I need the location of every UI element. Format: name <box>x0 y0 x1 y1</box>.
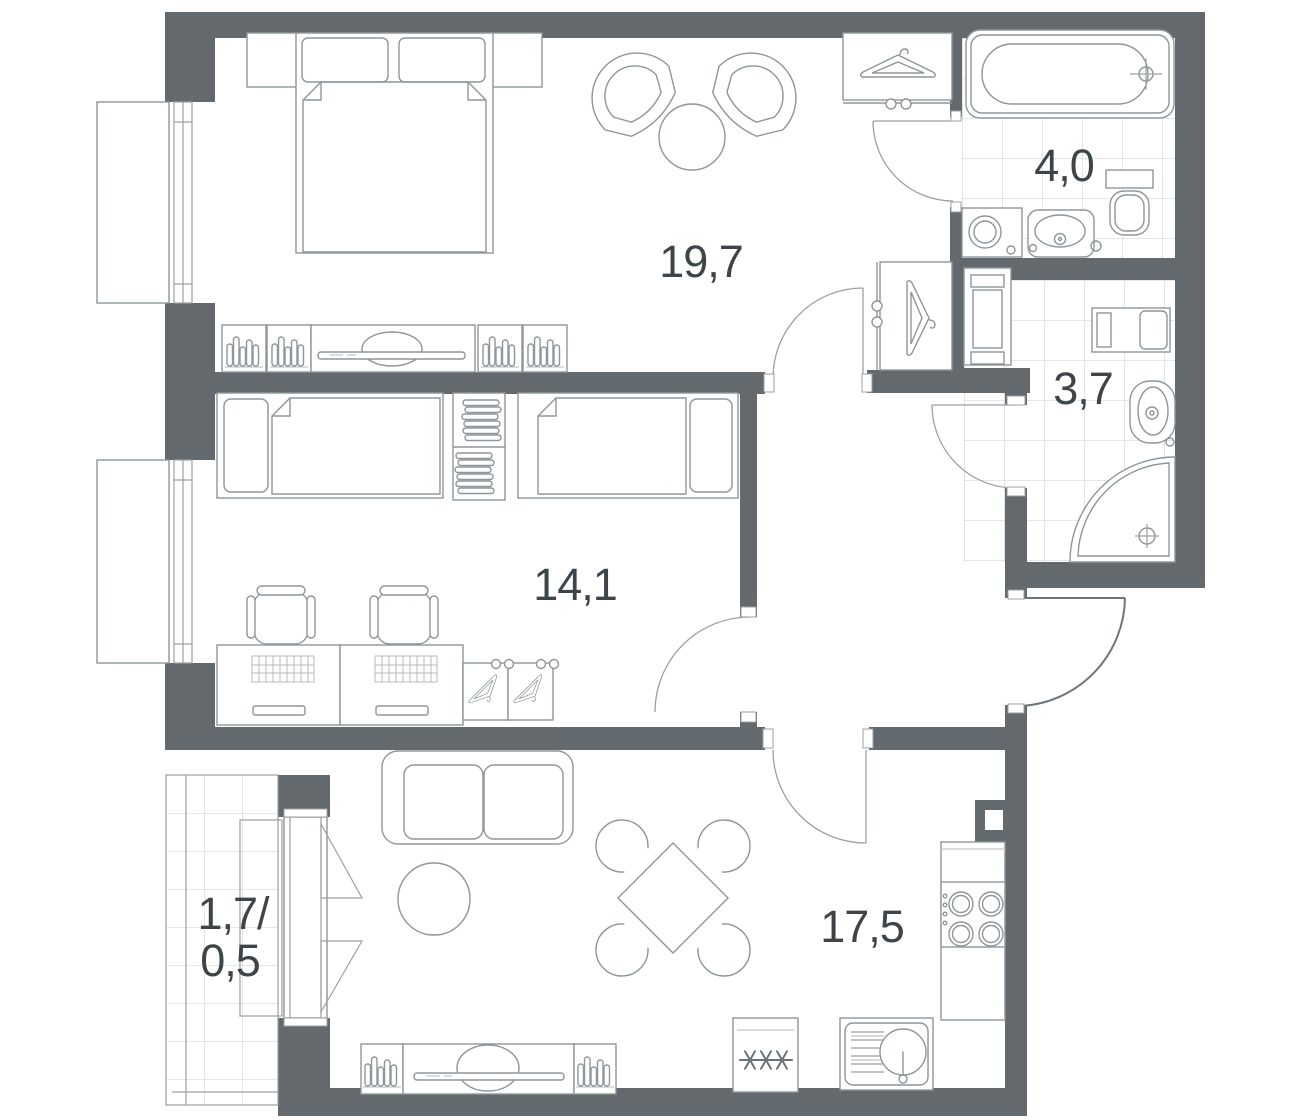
bathtub <box>966 30 1174 118</box>
door-entrance <box>1015 598 1125 706</box>
window-bedroom <box>97 102 192 303</box>
single-bed <box>217 393 443 498</box>
window-children-room <box>97 460 192 663</box>
sofa <box>382 751 573 844</box>
door-living <box>773 750 866 843</box>
office-chair <box>370 586 438 644</box>
door-bedroom <box>773 288 863 378</box>
shower-sink <box>1130 381 1175 446</box>
tv-stand-living <box>361 1044 616 1094</box>
refrigerator <box>733 1018 798 1092</box>
room-label-shower-room: 3,7 <box>1053 363 1113 414</box>
room-label-bathroom: 4,0 <box>1034 140 1094 191</box>
desk <box>217 645 340 725</box>
cabinet-shelf <box>1092 308 1170 352</box>
wardrobe-bedroom <box>843 33 952 109</box>
hall-closet <box>872 262 952 370</box>
dining-chair <box>698 924 750 976</box>
coffee-table <box>398 863 470 935</box>
door-bathroom <box>873 121 953 201</box>
side-table <box>659 104 725 170</box>
room-label-balcony-line1: 1,7/ <box>197 888 270 939</box>
bathroom-sink <box>1028 210 1094 257</box>
room-label-balcony-line2: 0,5 <box>200 935 260 986</box>
vent-shaft <box>985 810 1003 830</box>
floor-plan-svg: 19,7 4,0 3,7 14,1 17,5 1,7/ 0,5 <box>0 0 1300 1120</box>
stove <box>941 882 1005 947</box>
washing-machine <box>962 208 1022 257</box>
dining-chair <box>596 820 648 872</box>
dining-chair <box>698 820 750 872</box>
tv-stand-bedroom <box>222 325 567 372</box>
dining-chair <box>596 924 648 976</box>
dining-set <box>596 820 750 976</box>
shelf-clothes <box>453 393 505 500</box>
dining-table <box>618 843 728 953</box>
desk <box>340 645 463 725</box>
office-chair <box>247 586 315 644</box>
armchair <box>573 34 689 150</box>
single-bed <box>518 393 738 498</box>
armchair <box>699 34 815 150</box>
room-label-living-kitchen: 17,5 <box>820 901 904 952</box>
door-children-room <box>655 617 750 712</box>
kitchen-sink <box>840 1018 933 1090</box>
floor-plan: 19,7 4,0 3,7 14,1 17,5 1,7/ 0,5 <box>0 0 1300 1120</box>
towel-cabinet <box>964 268 1011 365</box>
double-bed <box>247 33 542 253</box>
room-label-children-room: 14,1 <box>533 559 617 610</box>
room-label-bedroom: 19,7 <box>659 236 743 287</box>
wardrobe-children <box>463 660 559 721</box>
